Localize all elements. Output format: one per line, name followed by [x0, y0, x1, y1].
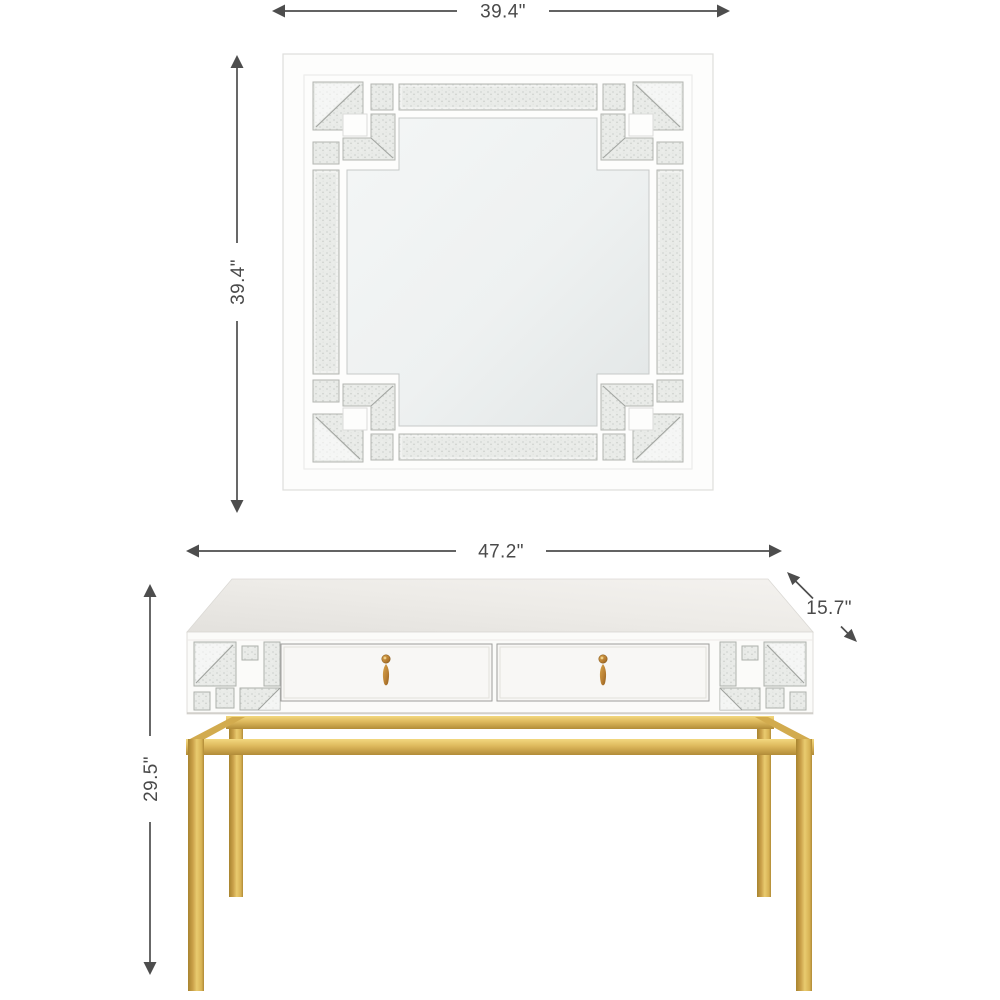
- back-rail: [226, 716, 774, 729]
- table-top: [187, 579, 813, 632]
- front-left-leg: [188, 739, 204, 991]
- table-depth-label: 15.7": [806, 598, 852, 619]
- table-width-label: 47.2": [478, 542, 524, 563]
- console-table: [186, 579, 814, 991]
- product-dimension-diagram: 39.4" 39.4" 47.2" 15.7" 29.5": [0, 0, 1000, 1000]
- front-right-leg: [796, 739, 812, 991]
- mirror-width-label: 39.4": [480, 2, 526, 23]
- mirror-height-label: 39.4": [228, 259, 249, 305]
- diagram-scene: 39.4" 39.4" 47.2" 15.7" 29.5": [0, 0, 1000, 1000]
- table-gold-base: [186, 716, 814, 991]
- table-height-label: 29.5": [141, 756, 162, 802]
- front-rail: [186, 739, 814, 755]
- wall-mirror: [283, 54, 713, 490]
